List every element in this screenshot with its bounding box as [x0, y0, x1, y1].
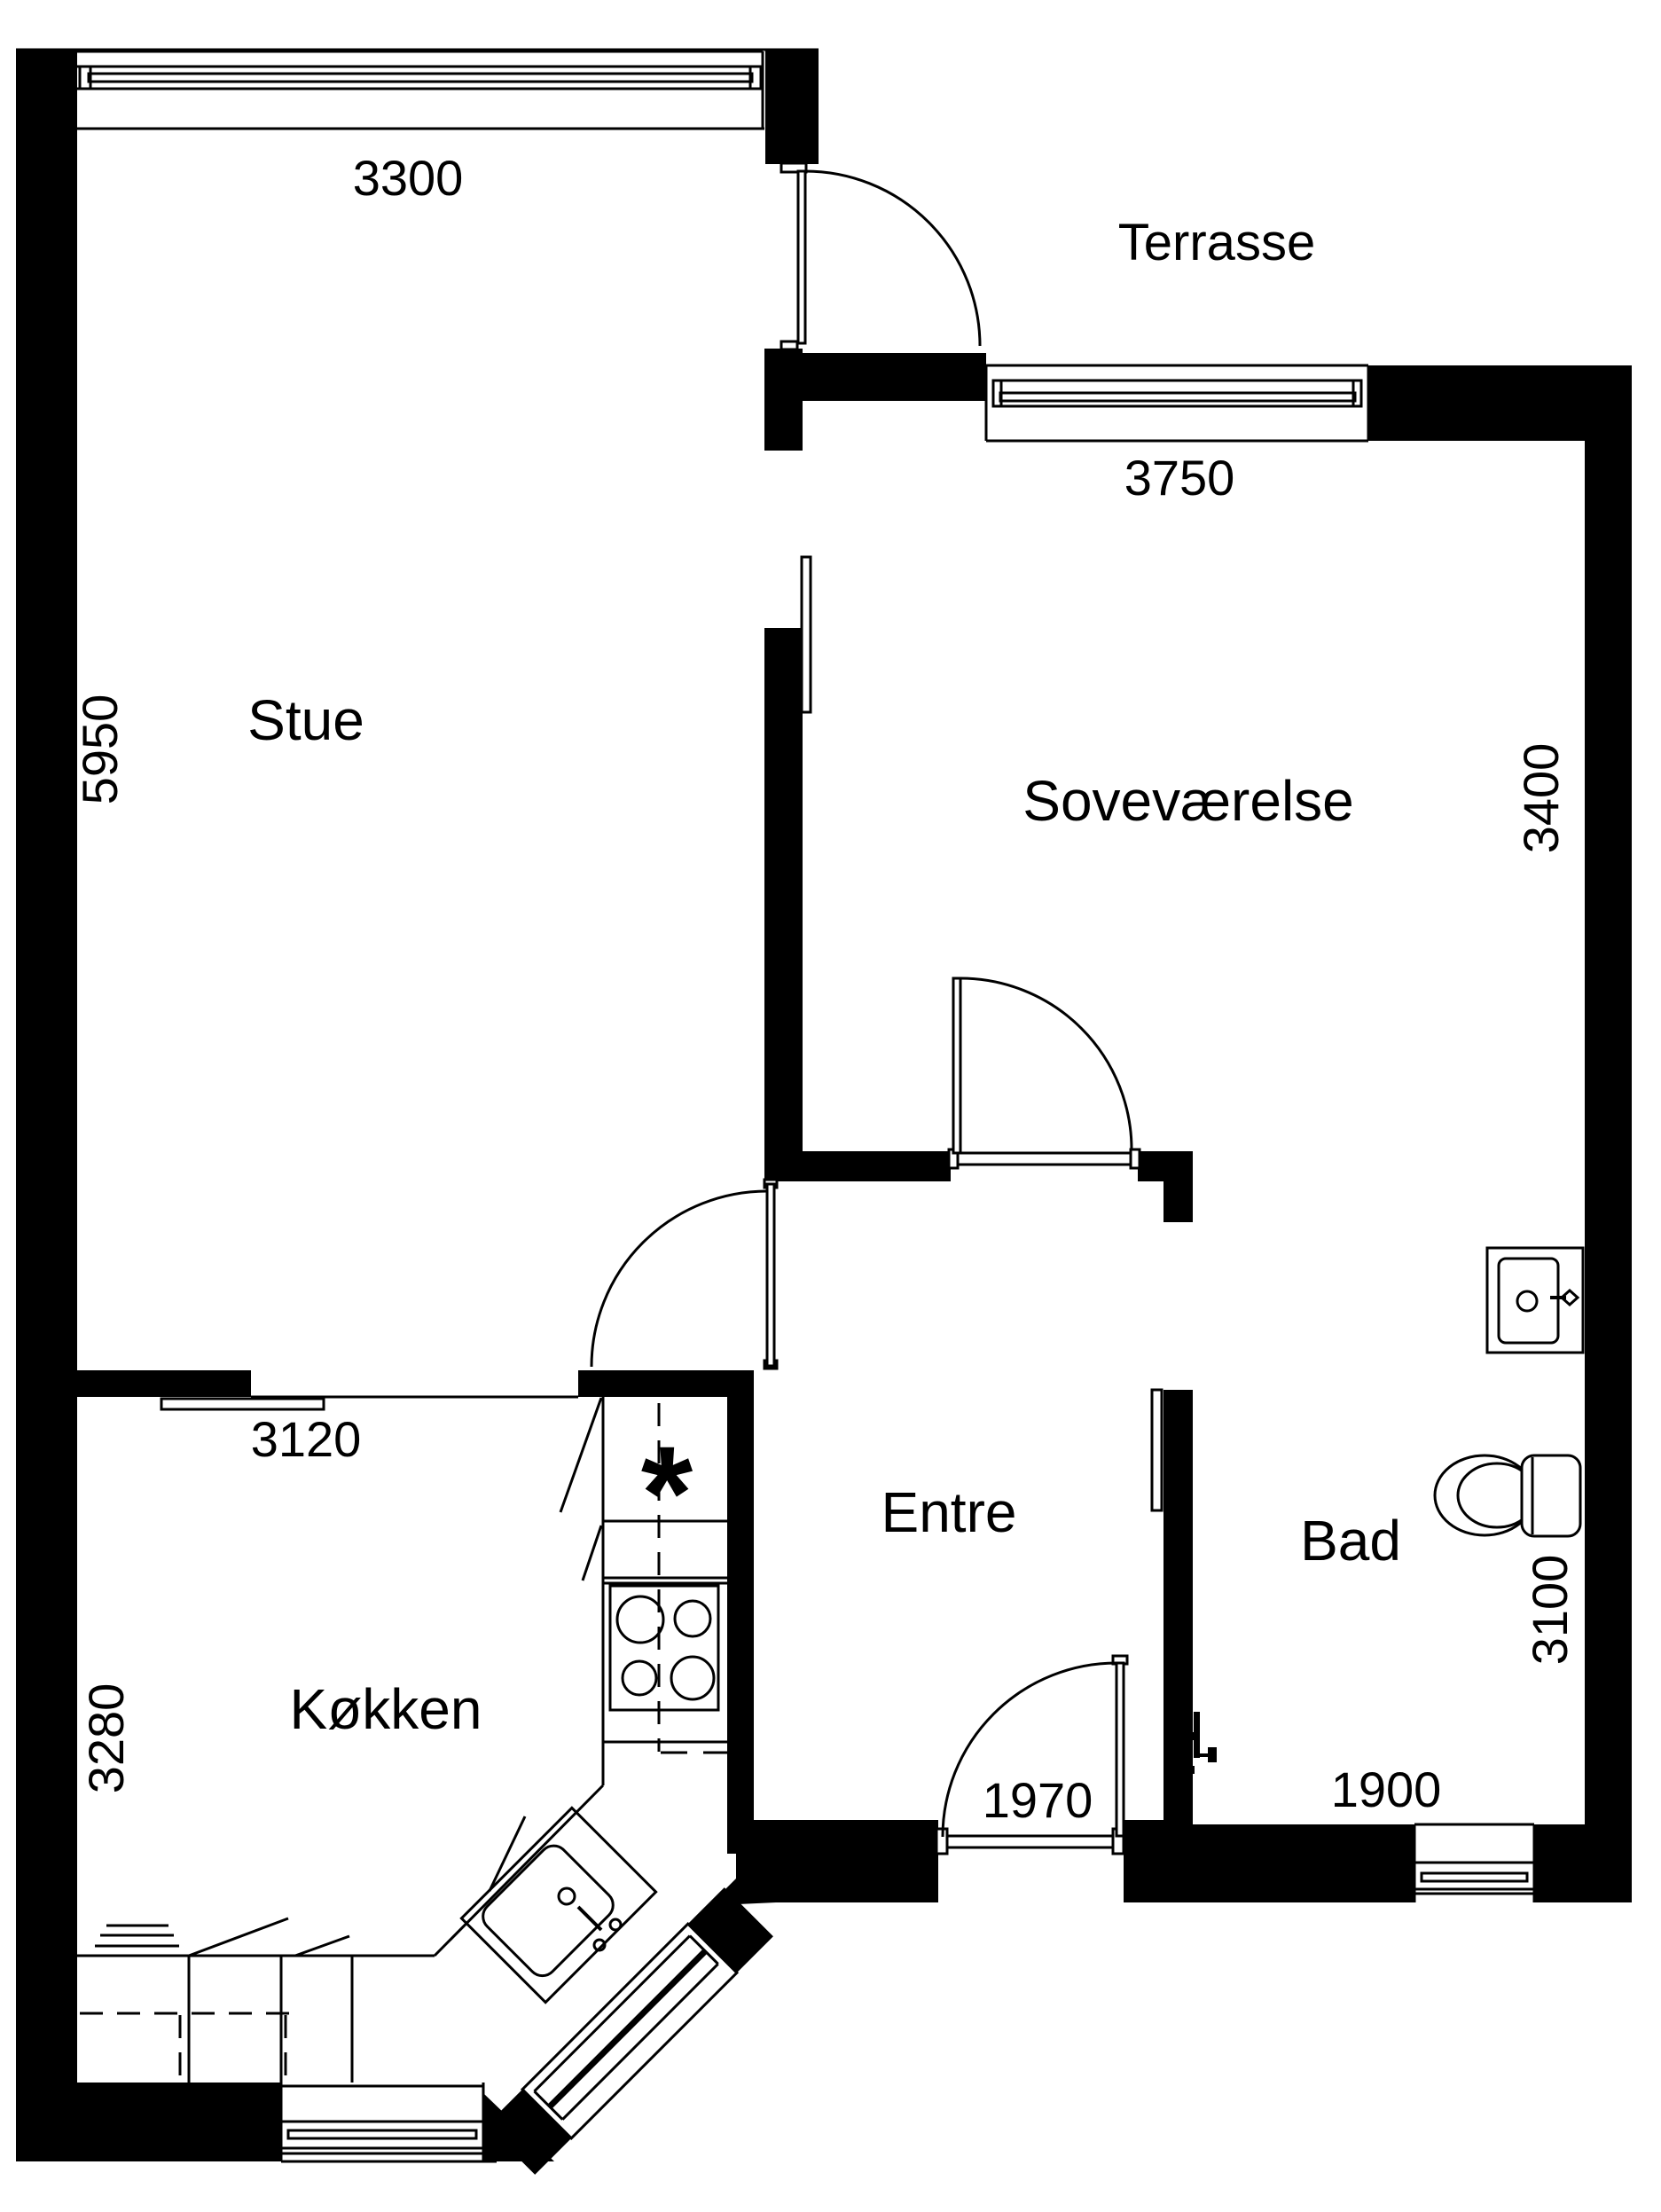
door-leaf: [767, 1184, 774, 1366]
burner: [623, 1661, 656, 1695]
window-panel-sove-wall: [802, 557, 811, 712]
sink-bowl: [477, 1839, 619, 1981]
wall-sove-south-left: [764, 1151, 951, 1181]
door-swing-arc: [592, 1191, 767, 1367]
cabinet-diagonal: [490, 1816, 525, 1891]
wall-stue-koekken-left: [16, 1370, 251, 1397]
door-leaf: [953, 978, 960, 1153]
dim-koekken-width: 3120: [251, 1411, 362, 1467]
toilet-cistern: [1522, 1455, 1580, 1536]
wall-stue-sove-main: [764, 628, 803, 1151]
window-sash: [89, 74, 752, 82]
wall-bad-south-left: [1179, 1824, 1414, 1902]
dim-bad-width: 1900: [1331, 1761, 1442, 1817]
washbasin: [1487, 1248, 1583, 1353]
burner: [617, 1596, 663, 1643]
wall-koekken-south: [16, 2083, 281, 2161]
window-sash: [1000, 393, 1355, 401]
window-end-detail: [1353, 380, 1361, 406]
sliding-door-panel-bad: [1152, 1390, 1162, 1510]
door-threshold-cap: [1131, 1149, 1140, 1168]
door-swing-arc: [960, 978, 1132, 1149]
cabinet-diagonal: [583, 1526, 601, 1581]
stove: [610, 1586, 718, 1710]
door-sovevaerelse: [949, 978, 1140, 1168]
cabinet-diagonal: [189, 1918, 288, 1956]
door-leaf: [1116, 1663, 1124, 1836]
window-koekken: [275, 2083, 497, 2161]
faucet-handle: [578, 1907, 601, 1930]
window-sash: [288, 2130, 476, 2138]
dim-stue-height: 5950: [72, 694, 128, 805]
basin-faucet: [1517, 1291, 1537, 1311]
kitchen-sink: [461, 1808, 655, 2002]
window-end-detail: [993, 380, 1001, 406]
sink-outline: [461, 1808, 655, 2002]
window-terrace: [986, 365, 1368, 441]
handle-detail: [1187, 1766, 1195, 1774]
door-leaf: [798, 171, 805, 343]
toilet: [1435, 1455, 1580, 1536]
handle-knob: [1208, 1747, 1217, 1762]
cabinet-diagonal: [295, 1936, 349, 1956]
window-glazing: [547, 1949, 707, 2108]
dim-bad-height: 3100: [1522, 1555, 1578, 1666]
handle-detail: [1187, 1732, 1195, 1740]
wall-right-exterior: [1585, 365, 1632, 1902]
room-label-sovevaerelse: Soveværelse: [1022, 769, 1354, 833]
door-terrasse: [781, 163, 980, 349]
basin-outline: [1487, 1248, 1583, 1353]
wall-left-exterior: [16, 49, 77, 2161]
dim-stue-width: 3300: [353, 150, 464, 206]
faucet: [559, 1888, 575, 1904]
doors: [592, 163, 1217, 1854]
radiator-stue-koekken-wall: [161, 1399, 324, 1409]
wall-bad-west-upper: [1163, 1181, 1193, 1222]
dim-sove-width: 3750: [1124, 450, 1235, 506]
window-bay-angled: [486, 1887, 773, 2175]
door-stue-entre: [592, 1180, 777, 1369]
wall-stue-sove-upper: [764, 349, 803, 451]
wall-sove-south-right: [1138, 1151, 1193, 1181]
window-sash: [1422, 1873, 1527, 1881]
wall-stue-koekken-right: [578, 1370, 754, 1397]
appliance-marker: *: [641, 1418, 693, 1567]
dim-entre-width: 1970: [983, 1772, 1093, 1828]
floor-plan: Stue Soveværelse Køkken Entre Bad Terras…: [0, 0, 1661, 2212]
room-label-entre: Entre: [881, 1480, 1017, 1544]
room-label-bad: Bad: [1300, 1509, 1401, 1573]
window-stue-top: [77, 51, 764, 129]
wall-post-top-door: [765, 51, 819, 164]
wall-koekken-entre: [727, 1397, 754, 1854]
room-labels: Stue Soveværelse Køkken Entre Bad Terras…: [247, 214, 1401, 1741]
bathroom-fixtures: [1435, 1248, 1583, 1536]
walls: [16, 49, 1632, 2161]
burner: [675, 1601, 710, 1636]
counter-edge-diagonal: [435, 1785, 603, 1956]
room-label-stue: Stue: [247, 688, 364, 752]
door-swing-arc: [805, 171, 980, 346]
basin-bowl: [1499, 1259, 1558, 1343]
wall-bad-south-right: [1534, 1824, 1632, 1902]
dim-koekken-height: 3280: [78, 1683, 134, 1794]
room-label-terrasse: Terrasse: [1118, 214, 1315, 271]
cabinet-diagonal: [560, 1398, 601, 1512]
handle-bar: [1194, 1712, 1200, 1758]
window-bad: [1408, 1824, 1540, 1902]
wall-bad-west-lower: [1163, 1390, 1193, 1824]
dim-sove-height: 3400: [1513, 743, 1569, 854]
burner: [671, 1657, 714, 1699]
room-label-koekken: Køkken: [290, 1677, 482, 1741]
door-hinge: [781, 341, 797, 349]
faucet-knob: [610, 1919, 621, 1930]
